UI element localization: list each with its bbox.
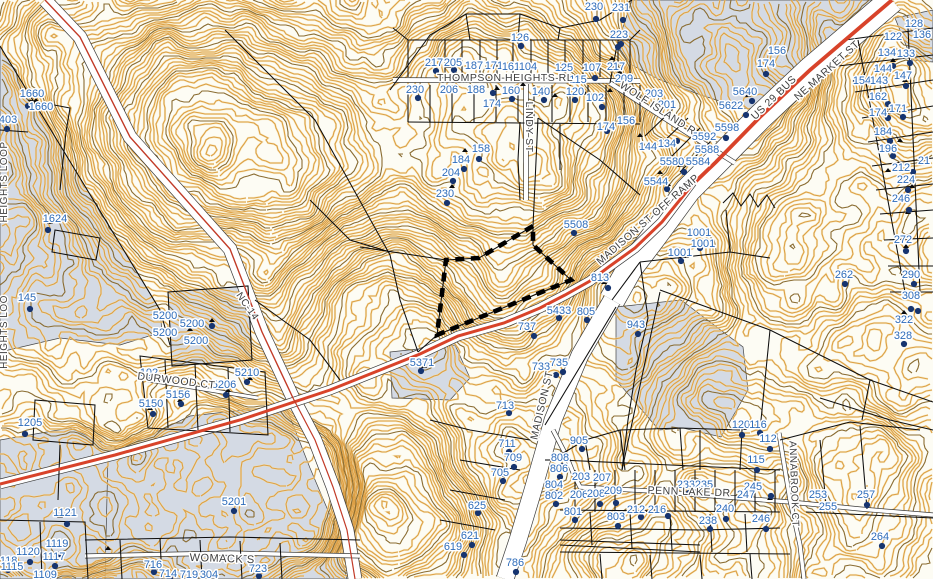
svg-text:134: 134 bbox=[658, 138, 676, 150]
svg-text:5508: 5508 bbox=[564, 219, 588, 231]
svg-text:1117: 1117 bbox=[43, 551, 66, 563]
svg-text:621: 621 bbox=[461, 530, 479, 542]
svg-text:156: 156 bbox=[617, 115, 635, 127]
svg-text:1001: 1001 bbox=[691, 238, 715, 250]
svg-text:203: 203 bbox=[572, 471, 590, 483]
svg-text:240: 240 bbox=[716, 503, 734, 515]
svg-text:143: 143 bbox=[870, 75, 888, 87]
svg-text:5200: 5200 bbox=[153, 327, 177, 339]
svg-text:162: 162 bbox=[869, 91, 887, 103]
svg-text:619: 619 bbox=[444, 541, 462, 553]
svg-text:158: 158 bbox=[472, 143, 490, 155]
svg-text:262: 262 bbox=[835, 269, 853, 281]
svg-text:144: 144 bbox=[874, 63, 892, 75]
svg-text:5200: 5200 bbox=[184, 335, 208, 347]
svg-text:LINDY ST: LINDY ST bbox=[523, 101, 535, 152]
svg-text:1624: 1624 bbox=[43, 213, 67, 225]
svg-text:290: 290 bbox=[902, 269, 920, 281]
svg-text:1660: 1660 bbox=[29, 101, 53, 113]
svg-text:187: 187 bbox=[465, 60, 483, 72]
svg-text:1119: 1119 bbox=[46, 538, 69, 550]
svg-text:223: 223 bbox=[610, 29, 628, 41]
svg-text:264: 264 bbox=[871, 531, 889, 543]
svg-text:156: 156 bbox=[768, 45, 786, 57]
svg-text:102: 102 bbox=[586, 92, 604, 104]
svg-text:5584: 5584 bbox=[686, 156, 710, 168]
svg-text:1403: 1403 bbox=[0, 114, 17, 126]
svg-text:247: 247 bbox=[737, 489, 755, 501]
svg-text:224: 224 bbox=[897, 174, 915, 186]
svg-text:21: 21 bbox=[918, 155, 930, 167]
svg-text:905: 905 bbox=[570, 435, 588, 447]
svg-text:171: 171 bbox=[889, 103, 907, 115]
svg-text:184: 184 bbox=[874, 126, 892, 138]
svg-text:107: 107 bbox=[583, 62, 601, 74]
svg-text:204: 204 bbox=[442, 167, 460, 179]
svg-text:144: 144 bbox=[639, 141, 657, 153]
svg-text:786: 786 bbox=[506, 557, 524, 569]
svg-text:115: 115 bbox=[747, 454, 765, 466]
svg-text:230: 230 bbox=[406, 84, 424, 96]
svg-text:5200: 5200 bbox=[180, 318, 204, 330]
svg-text:705: 705 bbox=[491, 467, 509, 479]
svg-text:255: 255 bbox=[819, 501, 837, 513]
svg-text:1660: 1660 bbox=[20, 88, 44, 100]
svg-text:120: 120 bbox=[732, 419, 750, 431]
svg-text:171: 171 bbox=[485, 60, 503, 72]
svg-text:160: 160 bbox=[502, 85, 520, 97]
svg-text:196: 196 bbox=[879, 143, 897, 155]
svg-text:5156: 5156 bbox=[166, 389, 190, 401]
svg-text:5588: 5588 bbox=[695, 144, 719, 156]
svg-text:188: 188 bbox=[467, 84, 485, 96]
svg-text:THOMPSON HEIGHTS RL: THOMPSON HEIGHTS RL bbox=[437, 72, 573, 84]
svg-text:5150: 5150 bbox=[139, 398, 163, 410]
svg-text:711: 711 bbox=[498, 438, 516, 450]
svg-text:5210: 5210 bbox=[235, 367, 259, 379]
svg-text:253: 253 bbox=[809, 489, 827, 501]
svg-text:1121: 1121 bbox=[53, 507, 77, 519]
svg-text:134: 134 bbox=[878, 47, 896, 59]
svg-text:231: 231 bbox=[612, 2, 630, 14]
svg-text:133: 133 bbox=[897, 48, 915, 60]
svg-text:206: 206 bbox=[440, 84, 458, 96]
svg-text:801: 801 bbox=[564, 506, 582, 518]
svg-text:207: 207 bbox=[593, 472, 611, 484]
svg-text:217: 217 bbox=[425, 57, 443, 69]
svg-text:5433: 5433 bbox=[547, 305, 571, 317]
svg-text:238: 238 bbox=[699, 515, 717, 527]
svg-text:625: 625 bbox=[468, 500, 486, 512]
svg-text:212: 212 bbox=[627, 504, 645, 516]
svg-text:184: 184 bbox=[452, 154, 470, 166]
svg-text:174: 174 bbox=[597, 121, 615, 133]
svg-text:206: 206 bbox=[570, 489, 588, 501]
svg-text:HEIGHTS LOO: HEIGHTS LOO bbox=[0, 295, 10, 369]
svg-text:1109: 1109 bbox=[33, 569, 57, 579]
svg-text:5592: 5592 bbox=[692, 131, 716, 143]
svg-text:116: 116 bbox=[749, 419, 767, 431]
svg-text:154: 154 bbox=[853, 75, 871, 87]
svg-text:230: 230 bbox=[585, 1, 603, 13]
svg-text:216: 216 bbox=[648, 504, 666, 516]
svg-text:304: 304 bbox=[200, 569, 218, 579]
svg-text:943: 943 bbox=[627, 319, 645, 331]
svg-text:122: 122 bbox=[884, 31, 902, 43]
svg-text:5371: 5371 bbox=[410, 357, 434, 369]
svg-text:WOMACK S: WOMACK S bbox=[189, 552, 255, 566]
svg-text:246: 246 bbox=[892, 193, 910, 205]
svg-text:145: 145 bbox=[18, 292, 36, 304]
svg-text:230: 230 bbox=[436, 188, 454, 200]
svg-text:126: 126 bbox=[511, 32, 529, 44]
svg-text:719: 719 bbox=[180, 569, 198, 579]
svg-text:735: 735 bbox=[550, 357, 568, 369]
svg-text:5201: 5201 bbox=[222, 496, 246, 508]
svg-text:140: 140 bbox=[532, 86, 550, 98]
svg-text:272: 272 bbox=[894, 234, 912, 246]
svg-text:322: 322 bbox=[895, 314, 913, 326]
svg-text:208: 208 bbox=[587, 488, 605, 500]
svg-text:174: 174 bbox=[869, 107, 887, 119]
svg-text:803: 803 bbox=[607, 511, 625, 523]
svg-text:714: 714 bbox=[159, 568, 177, 579]
svg-text:802: 802 bbox=[545, 490, 563, 502]
svg-text:257: 257 bbox=[857, 489, 875, 501]
svg-text:1205: 1205 bbox=[18, 417, 42, 429]
svg-text:5200: 5200 bbox=[153, 310, 177, 322]
svg-text:5580: 5580 bbox=[660, 156, 684, 168]
svg-text:1001: 1001 bbox=[668, 247, 692, 259]
svg-text:806: 806 bbox=[550, 463, 568, 475]
svg-text:174: 174 bbox=[757, 58, 775, 70]
svg-text:5598: 5598 bbox=[715, 122, 739, 134]
svg-text:112: 112 bbox=[759, 433, 777, 445]
svg-text:HEIGHTS LOOP: HEIGHTS LOOP bbox=[0, 141, 10, 222]
svg-text:205: 205 bbox=[444, 57, 462, 69]
svg-text:212: 212 bbox=[892, 162, 910, 174]
svg-text:5622: 5622 bbox=[719, 100, 743, 112]
svg-text:136: 136 bbox=[913, 29, 931, 41]
svg-text:1120: 1120 bbox=[16, 546, 40, 558]
svg-text:805: 805 bbox=[577, 306, 595, 318]
svg-text:813: 813 bbox=[591, 272, 609, 284]
svg-text:5544: 5544 bbox=[644, 176, 668, 188]
svg-text:737: 737 bbox=[518, 321, 536, 333]
svg-text:147: 147 bbox=[894, 70, 912, 82]
svg-text:209: 209 bbox=[604, 485, 622, 497]
svg-text:217: 217 bbox=[607, 61, 625, 73]
svg-text:246: 246 bbox=[752, 513, 770, 525]
svg-text:5640: 5640 bbox=[733, 86, 757, 98]
svg-text:174: 174 bbox=[483, 98, 501, 110]
svg-text:709: 709 bbox=[504, 452, 522, 464]
svg-text:713: 713 bbox=[496, 400, 514, 412]
svg-text:328: 328 bbox=[894, 330, 912, 342]
svg-text:308: 308 bbox=[902, 290, 920, 302]
svg-text:1115: 1115 bbox=[1, 561, 24, 573]
svg-text:120: 120 bbox=[566, 86, 584, 98]
